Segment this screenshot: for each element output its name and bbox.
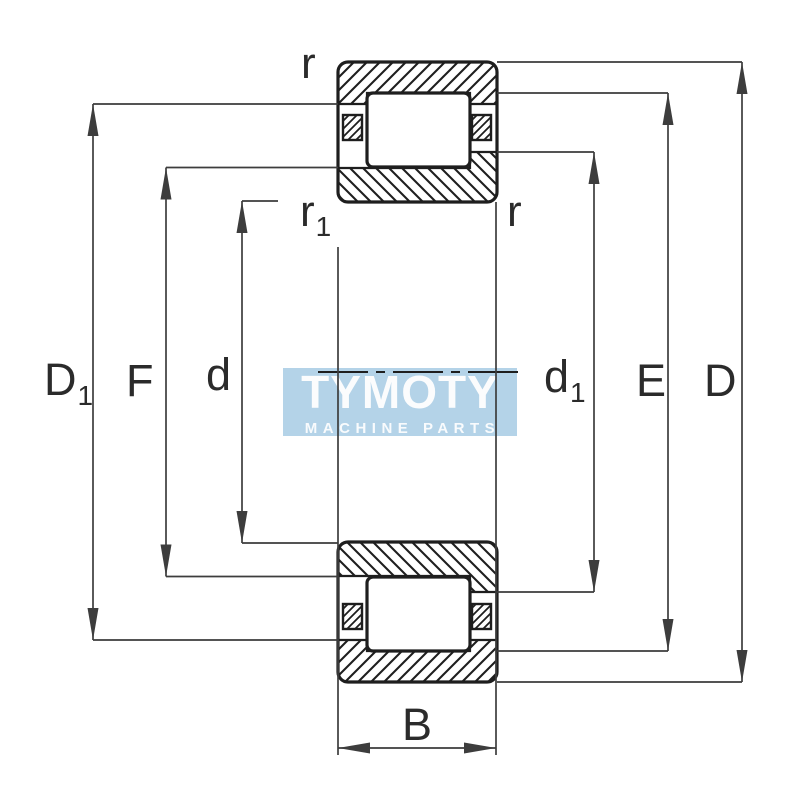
dim-label-d: d: [206, 352, 232, 397]
cage-left-top: [343, 115, 362, 140]
dim-label-B: B: [402, 702, 433, 747]
dim-label-d1: d1: [544, 354, 586, 399]
dim-label-F: F: [126, 358, 155, 403]
cage-right-bottom: [472, 604, 491, 629]
bearing-cross-section-svg: [0, 0, 800, 800]
roller-bottom: [367, 577, 470, 651]
radius-label-r-right: r: [507, 190, 523, 234]
bearing-dimension-drawing: TYMOTY MACHINE PARTS: [0, 0, 800, 800]
roller-top: [367, 93, 470, 167]
top-bearing-section: [338, 62, 497, 202]
radius-label-r-top: r: [301, 42, 317, 86]
cage-right-top: [472, 115, 491, 140]
radius-label-r1: r1: [300, 190, 331, 234]
bottom-bearing-section: [338, 542, 497, 682]
cage-left-bottom: [343, 604, 362, 629]
dim-label-D1: D1: [44, 357, 93, 402]
dim-label-E: E: [636, 358, 667, 403]
dim-label-D: D: [704, 358, 738, 403]
